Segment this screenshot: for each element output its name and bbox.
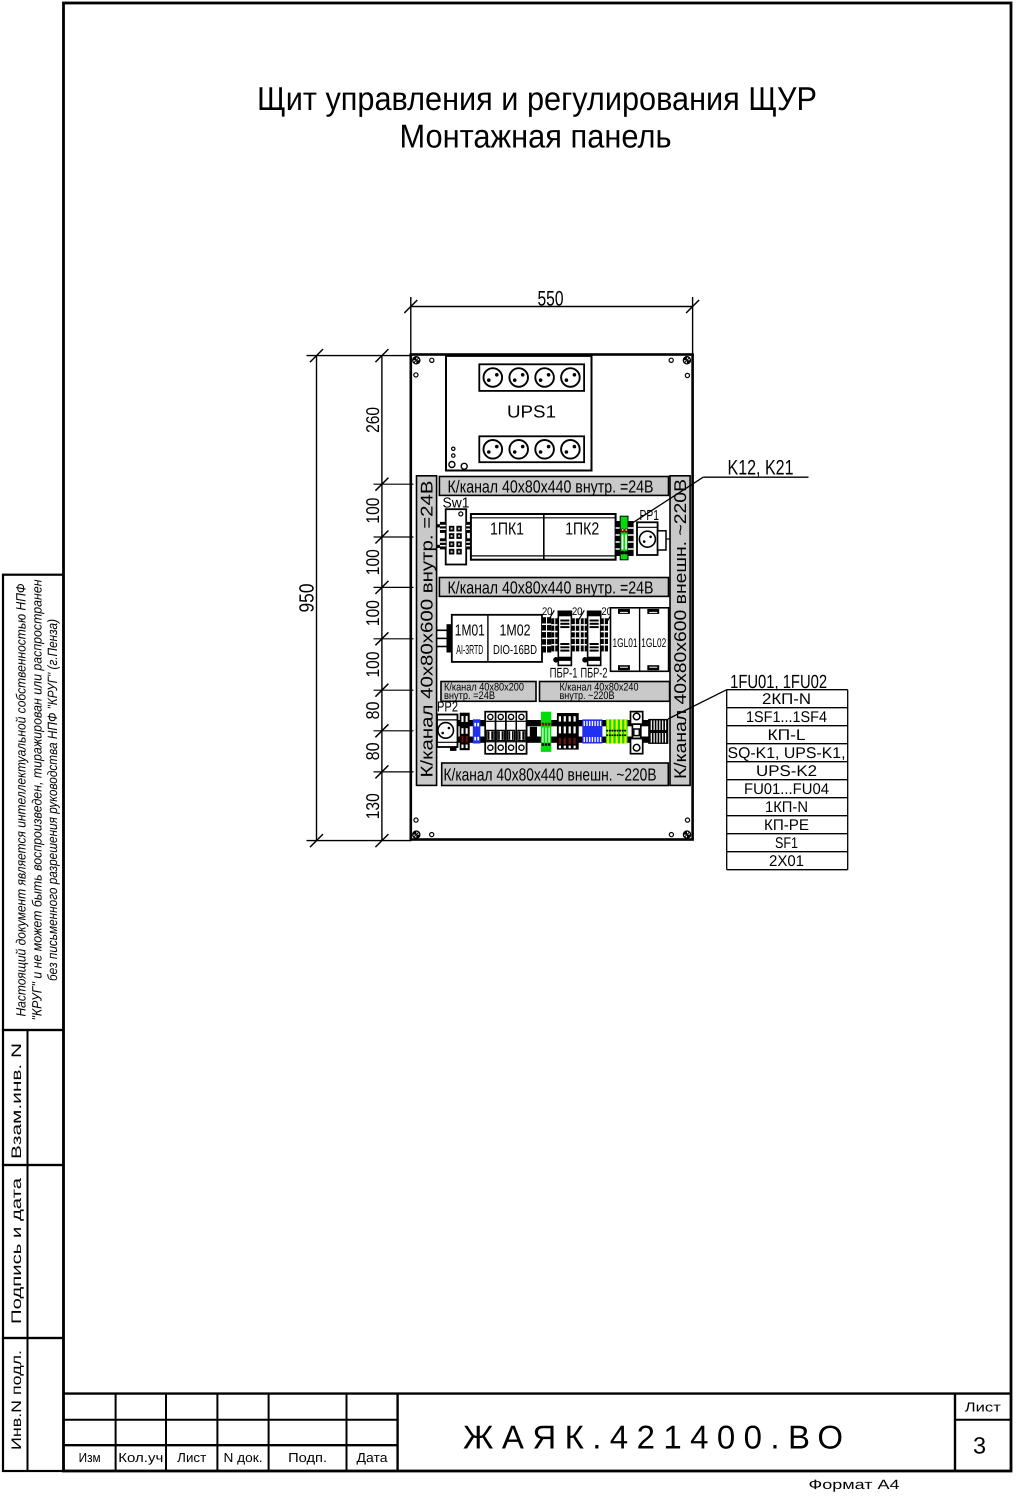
svg-text:AI-3RTD: AI-3RTD: [456, 642, 483, 657]
svg-text:100: 100: [362, 600, 383, 626]
svg-text:1ПК2: 1ПК2: [565, 518, 599, 538]
svg-text:К/канал 40х80х440 внутр. =24В: К/канал 40х80х440 внутр. =24В: [448, 476, 654, 496]
svg-text:SF1: SF1: [775, 835, 798, 852]
svg-text:1M02: 1M02: [500, 623, 531, 640]
svg-text:1GL02: 1GL02: [641, 636, 666, 650]
svg-text:К/канал 40х80х440 внутр. =24В: К/канал 40х80х440 внутр. =24В: [448, 577, 654, 597]
svg-text:100: 100: [362, 652, 383, 678]
svg-text:PP2: PP2: [437, 700, 458, 716]
svg-text:Лист: Лист: [177, 1450, 206, 1465]
svg-text:FU01...FU04: FU01...FU04: [744, 781, 829, 798]
svg-text:100: 100: [362, 498, 383, 524]
svg-text:ПБР-2: ПБР-2: [581, 665, 608, 681]
svg-text:100: 100: [362, 549, 383, 575]
svg-text:Подп.: Подп.: [288, 1450, 327, 1465]
svg-text:Настоящий документ является ин: Настоящий документ является интеллектуал…: [14, 583, 29, 1016]
svg-text:КП-PE: КП-PE: [764, 817, 809, 834]
svg-text:Щит управления и регулирования: Щит управления и регулирования ЩУР: [257, 80, 817, 117]
svg-text:Изм: Изм: [79, 1450, 101, 1465]
svg-text:2КП-N: 2КП-N: [762, 691, 811, 708]
svg-text:К/канал 40х80х600 внутр. =24В: К/канал 40х80х600 внутр. =24В: [418, 481, 437, 778]
svg-text:К/канал 40х80х600 внешн. ~220В: К/канал 40х80х600 внешн. ~220В: [671, 479, 690, 779]
svg-text:550: 550: [538, 288, 564, 311]
svg-text:Монтажная панель: Монтажная панель: [400, 118, 672, 155]
svg-text:1GL01: 1GL01: [613, 636, 638, 650]
svg-text:Взам.инв. N: Взам.инв. N: [9, 1043, 24, 1159]
svg-text:внутр. ~220В: внутр. ~220В: [560, 690, 615, 702]
svg-text:ПБР-1: ПБР-1: [550, 665, 578, 681]
svg-text:DIO-16BD: DIO-16BD: [493, 642, 537, 657]
svg-text:Кол.уч: Кол.уч: [118, 1450, 163, 1465]
svg-text:"КРУГ" и не может быть воспрои: "КРУГ" и не может быть воспроизведен, ти…: [30, 579, 45, 1021]
svg-text:K12, K21: K12, K21: [728, 457, 794, 480]
svg-text:N док.: N док.: [224, 1450, 263, 1465]
svg-text:Инв.N подл.: Инв.N подл.: [9, 1350, 24, 1450]
svg-text:80: 80: [362, 742, 383, 760]
svg-text:КП-L: КП-L: [768, 727, 806, 744]
svg-text:1M01: 1M01: [455, 623, 485, 640]
svg-text:2X01: 2X01: [769, 853, 804, 870]
svg-text:1ПК1: 1ПК1: [490, 518, 524, 538]
svg-text:1КП-N: 1КП-N: [765, 799, 808, 816]
svg-text:260: 260: [362, 407, 383, 433]
svg-text:Лист: Лист: [965, 1400, 1001, 1415]
svg-text:UPS1: UPS1: [507, 402, 556, 422]
svg-text:К/канал 40х80х440 внешн. ~220В: К/канал 40х80х440 внешн. ~220В: [444, 764, 657, 784]
svg-text:130: 130: [362, 793, 383, 819]
svg-text:3: 3: [973, 1433, 986, 1459]
svg-text:Дата: Дата: [357, 1450, 389, 1465]
svg-text:1SF1...1SF4: 1SF1...1SF4: [746, 709, 827, 726]
svg-text:SQ-K1, UPS-K1,: SQ-K1, UPS-K1,: [728, 745, 846, 762]
svg-text:950: 950: [296, 584, 319, 613]
svg-text:UPS-K2: UPS-K2: [756, 763, 817, 780]
svg-text:Формат А4: Формат А4: [809, 1477, 901, 1492]
svg-text:80: 80: [362, 702, 383, 720]
svg-text:без письменного разрешения рук: без письменного разрешения руководства Н…: [45, 619, 60, 981]
svg-text:Подпись и дата: Подпись и дата: [9, 1178, 24, 1324]
